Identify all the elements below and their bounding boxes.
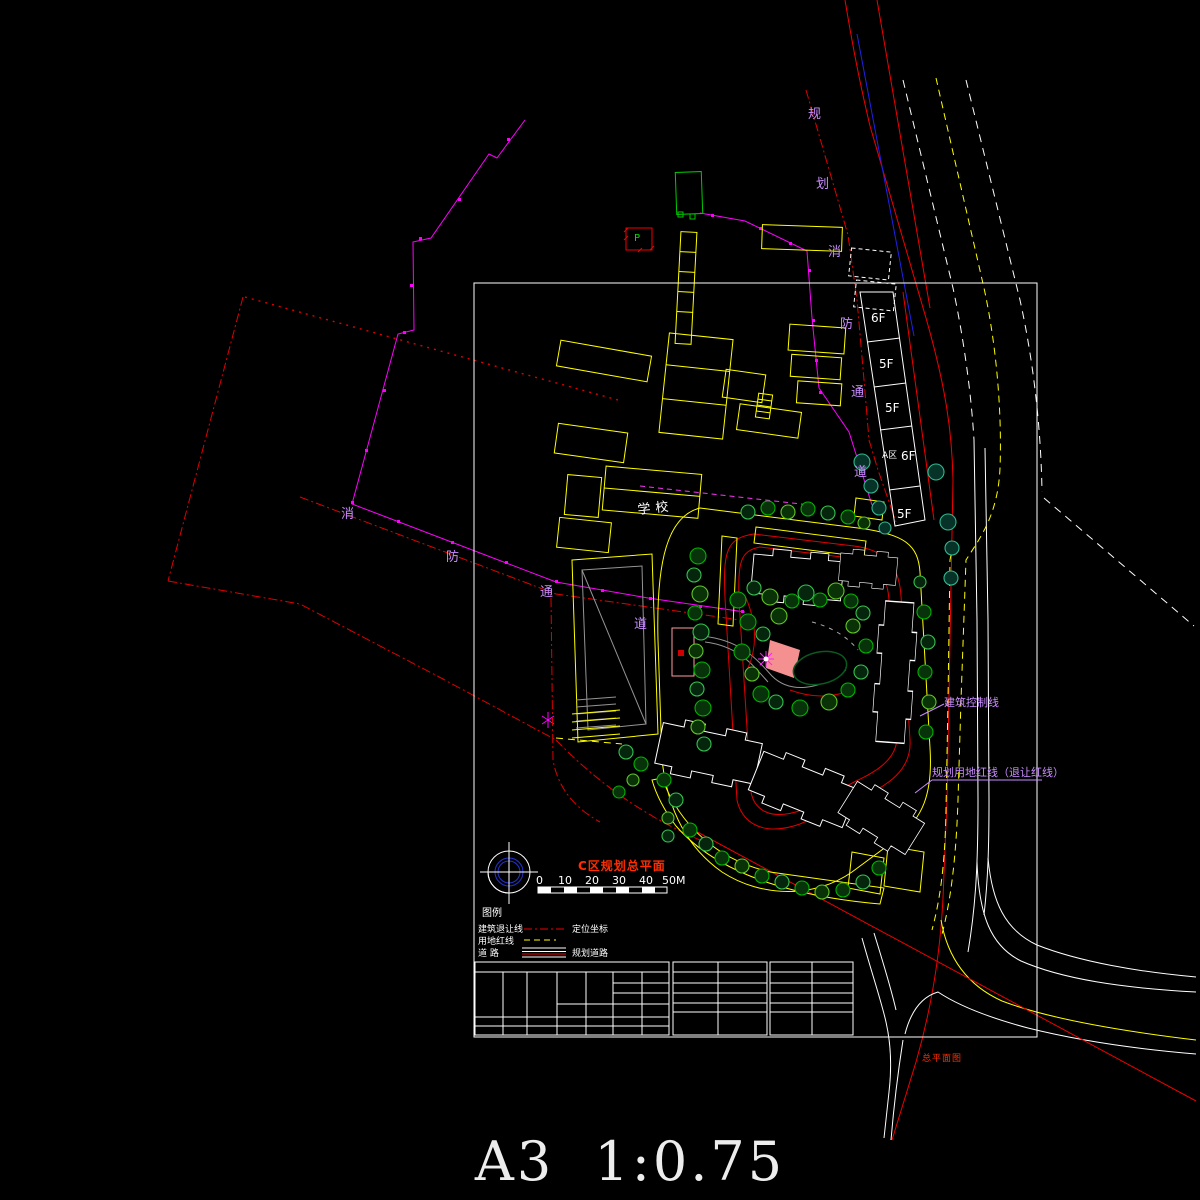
- svg-text:通: 通: [851, 385, 864, 400]
- fountain-icon: [758, 651, 774, 667]
- svg-text:10: 10: [558, 874, 572, 887]
- green-plot: [675, 172, 702, 219]
- svg-text:0: 0: [536, 874, 543, 887]
- floor-label-2: 5F: [879, 357, 894, 371]
- sheet-format-scale: A3 1:0.75: [474, 1130, 785, 1193]
- svg-text:20: 20: [585, 874, 599, 887]
- svg-text:40: 40: [639, 874, 653, 887]
- parking-p-label: P: [634, 233, 640, 244]
- plan-title: C区规划总平面: [578, 858, 666, 873]
- svg-text:30: 30: [612, 874, 626, 887]
- svg-text:防: 防: [840, 316, 853, 332]
- stamp-label: 总平面图: [922, 1052, 962, 1064]
- svg-text:道: 道: [634, 617, 647, 632]
- building-control-label: 建筑控制线: [944, 695, 999, 709]
- table-middle: [673, 962, 767, 1035]
- reserved-plots: [849, 248, 897, 311]
- svg-text:划: 划: [816, 177, 829, 192]
- legend-row1-label: 建筑退让线: [478, 923, 523, 935]
- svg-text:规: 规: [808, 107, 821, 122]
- legend-row1-right: 定位坐标: [572, 923, 608, 935]
- drawing-frame: [474, 283, 1037, 1037]
- svg-text:道: 道: [854, 465, 867, 480]
- floor-label-4: 6F: [901, 449, 916, 463]
- floor-label-5: 5F: [897, 507, 912, 521]
- fire-lane-label-ne: 规 划 消 防 通 道: [808, 107, 867, 480]
- svg-text:消: 消: [341, 507, 354, 522]
- floor-label-3: 5F: [885, 401, 900, 415]
- table-right: [770, 962, 853, 1035]
- fire-lane-label-sw: 消 防 通 道: [341, 507, 647, 632]
- svg-text:50M: 50M: [662, 874, 686, 887]
- legend-row2-label: 用地红线: [478, 935, 514, 947]
- school-label: 学校: [637, 498, 674, 518]
- floor-label-1: 6F: [871, 311, 886, 325]
- site-plan-drawing: P 学校: [0, 0, 1200, 1200]
- legend-title: 图例: [482, 906, 502, 919]
- legend-row3-right: 规划道路: [572, 947, 608, 959]
- svg-text:通: 通: [540, 585, 553, 600]
- existing-buildings: [554, 225, 845, 553]
- legend-row3-label: 道 路: [478, 947, 499, 959]
- north-arrow-icon: [480, 842, 538, 904]
- planning-redline-label: 规划用地红线（退让红线）: [932, 765, 1064, 779]
- zone-a-label: A区: [882, 450, 897, 461]
- svg-text:防: 防: [446, 549, 459, 565]
- planning-redline-annotation: 规划用地红线（退让红线）: [915, 765, 1064, 793]
- school-building: [572, 554, 658, 742]
- cad-canvas: P 学校: [0, 0, 1200, 1200]
- title-block-tables: [475, 962, 853, 1035]
- svg-text:消: 消: [828, 245, 841, 260]
- site-boundary-lines: [168, 90, 934, 840]
- scale-bar: 0 10 20 30 40 50M: [536, 874, 686, 893]
- legend: 图例 建筑退让线 定位坐标 用地红线 道 路 规划道路: [478, 906, 608, 959]
- table-left: [475, 962, 669, 1035]
- boundary-tick-marks: [351, 138, 744, 613]
